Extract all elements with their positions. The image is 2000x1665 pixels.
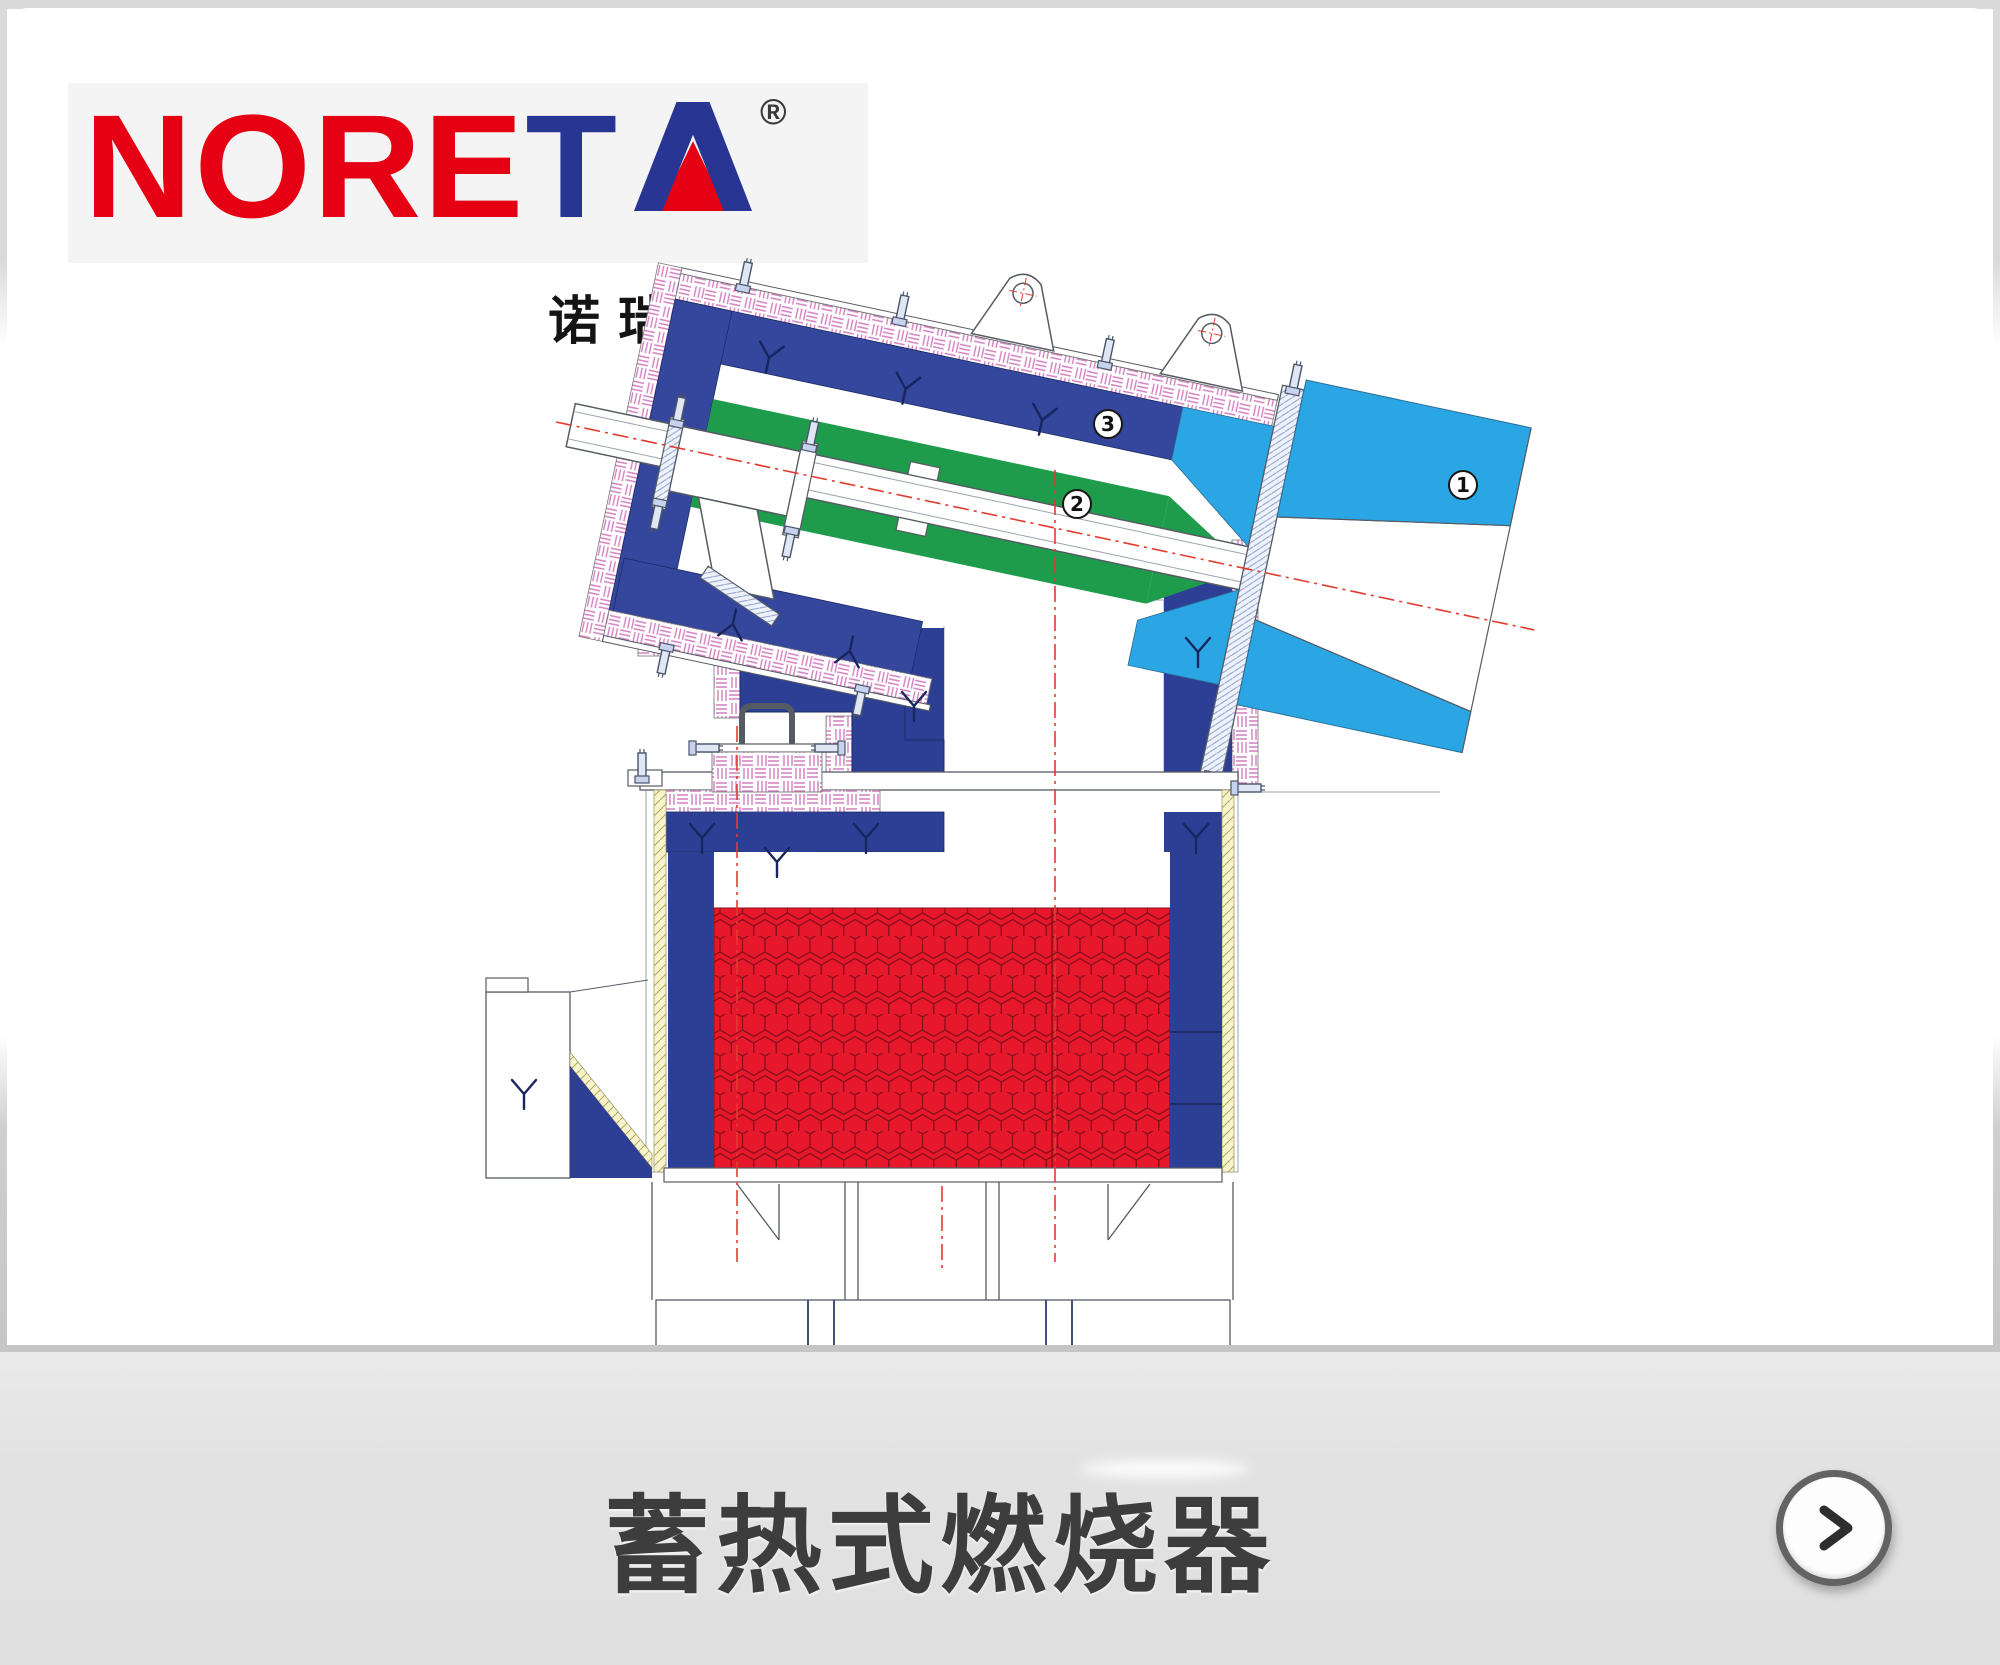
footer-bar: 蓄热式燃烧器: [0, 1352, 2000, 1665]
product-title: 蓄热式燃烧器: [0, 1460, 1880, 1614]
callout-3: 3: [1093, 409, 1123, 439]
callout-1: 1: [1448, 470, 1478, 500]
vessel-cover: [689, 706, 845, 792]
honeycomb-regenerator-media: [714, 908, 1170, 1168]
support-legs: [652, 1182, 1233, 1346]
next-button[interactable]: [1776, 1470, 1892, 1586]
side-flue-box: [486, 978, 652, 1178]
chevron-right-icon: [1804, 1498, 1864, 1558]
callout-2: 2: [1062, 489, 1092, 519]
regenerator-vessel: [628, 706, 1238, 1182]
footer-divider: [0, 1345, 2000, 1352]
